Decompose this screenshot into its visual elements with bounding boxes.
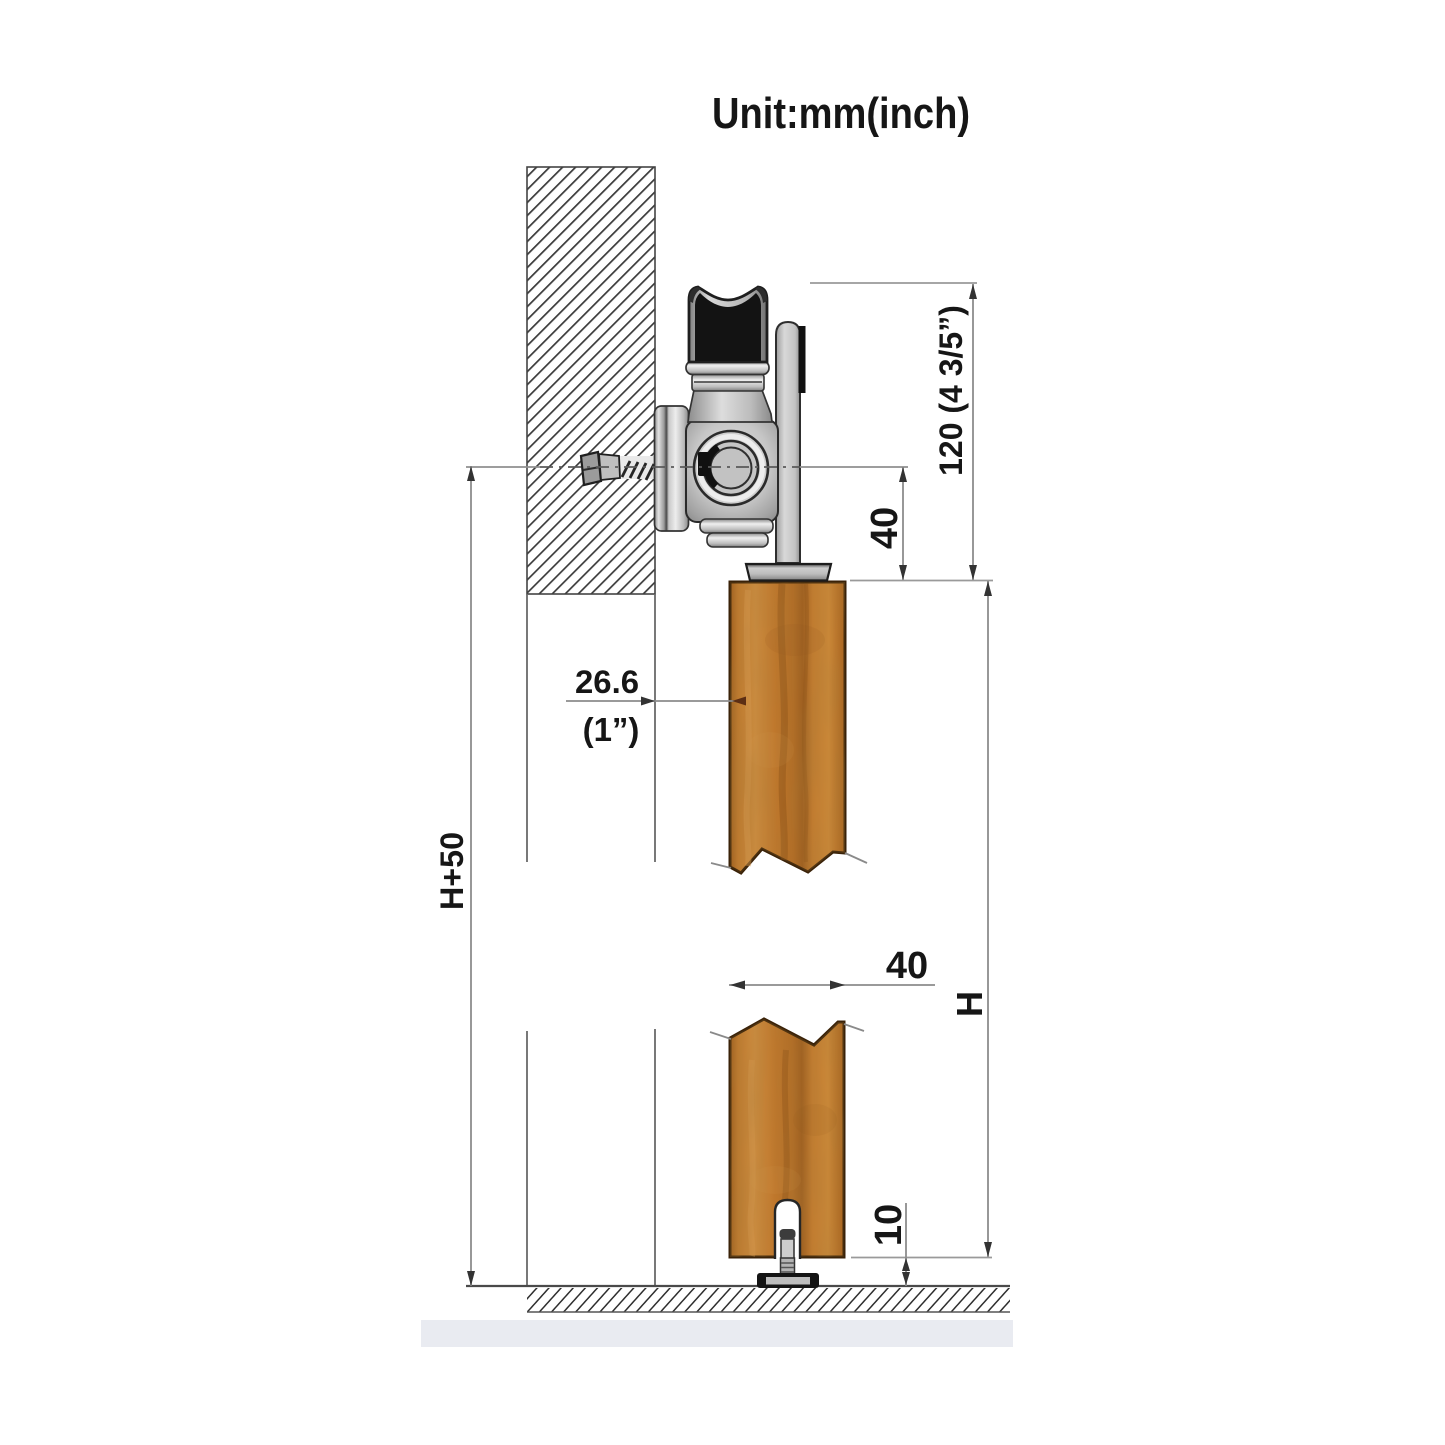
svg-text:40: 40 [886, 945, 928, 987]
svg-text:26.6: 26.6 [575, 664, 639, 700]
svg-text:10: 10 [868, 1204, 910, 1246]
svg-text:Unit:mm(inch): Unit:mm(inch) [712, 89, 970, 138]
svg-text:H: H [949, 991, 990, 1017]
svg-text:(1”): (1”) [583, 711, 640, 748]
svg-text:40: 40 [864, 507, 906, 549]
svg-text:H+50: H+50 [434, 832, 470, 910]
svg-text:120 (4 3/5”): 120 (4 3/5”) [933, 305, 969, 476]
